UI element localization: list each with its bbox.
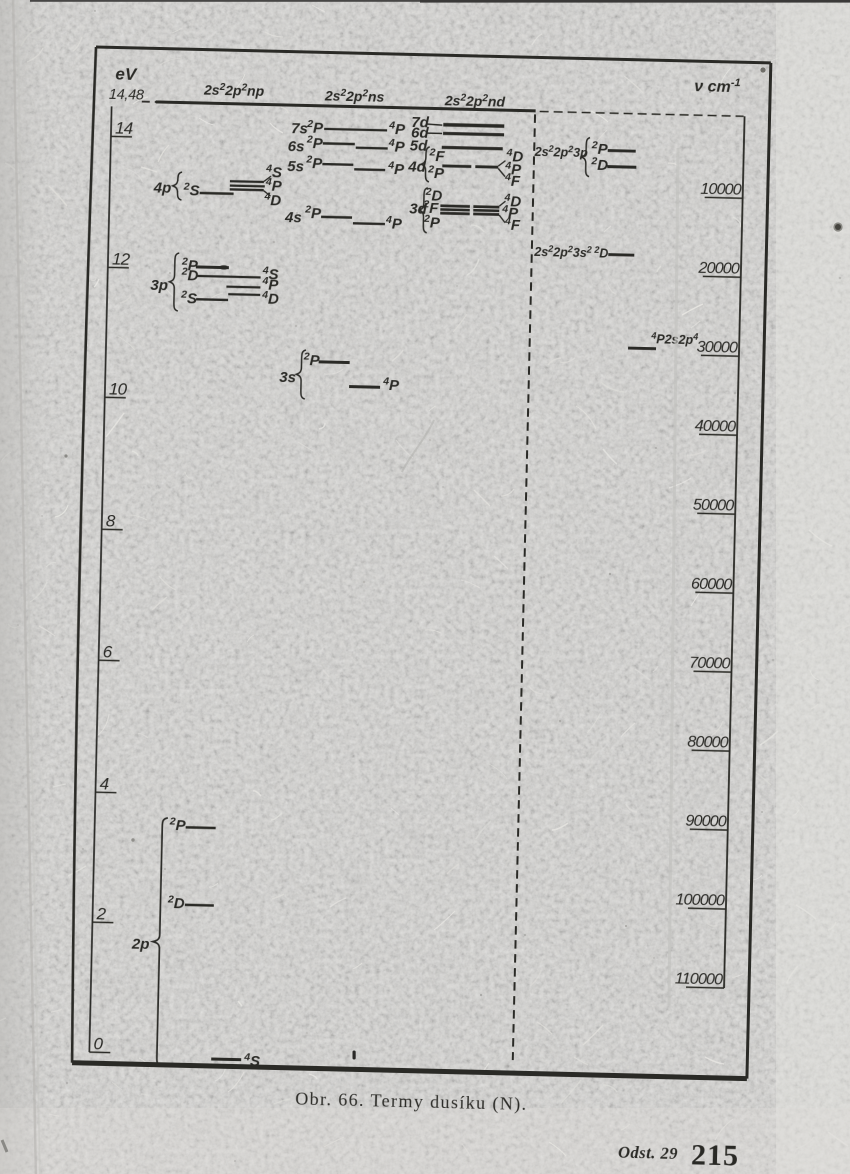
svg-text:2s22p2nd: 2s22p2nd [444,92,506,109]
svg-text:Odst. 29: Odst. 29 [618,1143,678,1163]
svg-text:14: 14 [115,118,133,137]
svg-text:215: 215 [691,1138,740,1172]
svg-text:110000: 110000 [675,970,724,988]
svg-text:4s: 4s [284,209,302,226]
svg-text:80000: 80000 [687,734,729,752]
svg-text:50000: 50000 [693,497,735,515]
svg-text:4d: 4d [407,158,427,175]
svg-text:10000: 10000 [700,181,742,199]
svg-text:90000: 90000 [685,813,727,831]
svg-text:40000: 40000 [695,418,737,436]
svg-text:3s: 3s [279,369,296,386]
svg-text:20000: 20000 [697,260,740,278]
svg-text:60000: 60000 [691,576,733,594]
svg-text:10: 10 [109,379,128,398]
svg-text:12: 12 [112,249,131,268]
svg-text:2s22p2ns: 2s22p2ns [324,87,385,104]
svg-text:4P2s2p4: 4P2s2p4 [650,331,698,348]
svg-text:eV: eV [115,64,138,84]
svg-text:6s: 6s [288,138,305,155]
svg-text:4: 4 [99,774,108,793]
svg-text:100000: 100000 [675,891,725,909]
svg-text:7s: 7s [291,120,308,137]
svg-text:2s22p23p: 2s22p23p [534,143,589,160]
svg-text:14,48: 14,48 [109,87,144,104]
svg-text:2s22p2np: 2s22p2np [203,82,265,99]
svg-text:30000: 30000 [696,339,738,357]
svg-text:70000: 70000 [689,655,731,673]
svg-text:2p: 2p [131,936,150,953]
svg-text:3p: 3p [150,277,168,294]
svg-text:5s: 5s [287,158,304,175]
svg-text:4p: 4p [153,179,172,196]
